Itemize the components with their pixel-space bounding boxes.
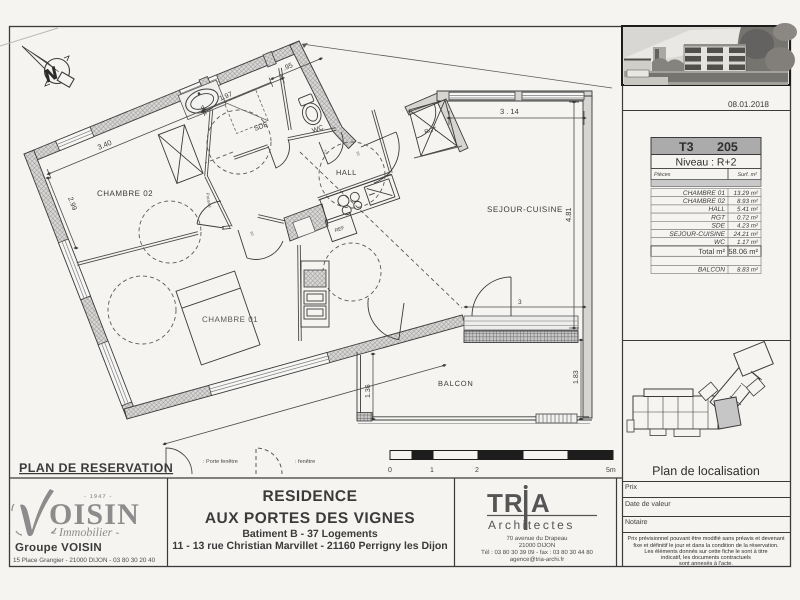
svg-text:15 Place Grangier - 21000 DIJO: 15 Place Grangier - 21000 DIJON - 03 80 …: [13, 557, 156, 564]
svg-text:: Porte fenêtre: : Porte fenêtre: [203, 459, 238, 465]
svg-text:WC: WC: [714, 239, 725, 246]
svg-text:4.23 m²: 4.23 m²: [737, 223, 759, 230]
svg-text:5.41 m²: 5.41 m²: [737, 206, 759, 213]
svg-text:HALL: HALL: [336, 168, 357, 177]
svg-text:Prix prévisionnel pouvant être: Prix prévisionnel pouvant être modifié s…: [627, 535, 784, 542]
svg-text:08.01.2018: 08.01.2018: [728, 100, 769, 109]
svg-text:BALCON: BALCON: [698, 267, 725, 274]
svg-text:RGT: RGT: [711, 214, 726, 221]
svg-text:SEJOUR-CUISINE: SEJOUR-CUISINE: [669, 231, 725, 238]
svg-text:70 avenue du Drapeau: 70 avenue du Drapeau: [506, 535, 567, 542]
svg-text:4.81: 4.81: [564, 207, 573, 222]
svg-text:0.72 m²: 0.72 m²: [737, 214, 759, 221]
svg-text:SEJOUR-CUISINE: SEJOUR-CUISINE: [487, 205, 563, 214]
svg-text:1: 1: [430, 467, 434, 474]
svg-text:AUX PORTES DES VIGNES: AUX PORTES DES VIGNES: [205, 510, 415, 527]
svg-text:13.29 m²: 13.29 m²: [734, 190, 759, 197]
svg-text:BALCON: BALCON: [438, 379, 474, 388]
svg-text:11 - 13 rue Christian Marville: 11 - 13 rue Christian Marvillet - 21160 …: [172, 540, 447, 552]
svg-text:Les éléments donnés sur cette: Les éléments donnés sur cette fiche le s…: [644, 548, 767, 555]
svg-text:CHAMBRE 01: CHAMBRE 01: [202, 315, 258, 324]
svg-text:5m: 5m: [606, 467, 616, 474]
svg-text:T3: T3: [679, 140, 694, 154]
svg-text:Prix: Prix: [625, 483, 638, 491]
svg-text:1.83: 1.83: [573, 370, 580, 384]
svg-text:8.83 m²: 8.83 m²: [737, 267, 759, 274]
svg-text:Groupe VOISIN: Groupe VOISIN: [15, 542, 102, 554]
svg-text:- Immobilier -: - Immobilier -: [52, 525, 119, 539]
svg-text:58.06 m²: 58.06 m²: [728, 247, 758, 256]
svg-text:Surf. m²: Surf. m²: [737, 172, 757, 178]
svg-text:Architectes: Architectes: [488, 518, 575, 532]
svg-text:Niveau : R+2: Niveau : R+2: [676, 157, 737, 169]
svg-text:3 . 14: 3 . 14: [500, 107, 519, 116]
svg-text:CHAMBRE 02: CHAMBRE 02: [683, 198, 725, 205]
svg-text:0: 0: [388, 467, 392, 474]
svg-text:Batiment B - 37 Logements: Batiment B - 37 Logements: [242, 528, 378, 540]
svg-text:RESIDENCE: RESIDENCE: [263, 488, 358, 505]
svg-text:HALL: HALL: [709, 206, 726, 213]
svg-text:Plan de localisation: Plan de localisation: [652, 464, 760, 478]
svg-text:fixe et définitif le jour et d: fixe et définitif le jour et dans la con…: [633, 542, 779, 549]
svg-text:PLAN DE RESERVATION: PLAN DE RESERVATION: [19, 461, 173, 475]
svg-text:Total m²: Total m²: [698, 247, 725, 256]
svg-text:agence@tria-archi.fr: agence@tria-archi.fr: [510, 556, 564, 563]
svg-text:1.17 m²: 1.17 m²: [737, 239, 759, 246]
svg-text:24.21 m²: 24.21 m²: [733, 231, 759, 238]
svg-text:Pièces: Pièces: [654, 171, 671, 178]
svg-text:8.93 m²: 8.93 m²: [737, 198, 759, 205]
svg-text:3: 3: [518, 299, 522, 306]
svg-text:Tél : 03 80 30 39 09 - fax : 0: Tél : 03 80 30 39 09 - fax : 03 80 30 44…: [481, 549, 593, 556]
svg-text:CHAMBRE 01: CHAMBRE 01: [683, 190, 725, 197]
svg-text:2: 2: [475, 467, 479, 474]
svg-text:Date de valeur: Date de valeur: [625, 500, 671, 508]
svg-text:sont annexés à l'acte.: sont annexés à l'acte.: [679, 560, 733, 567]
svg-text:TR A: TR A: [487, 488, 551, 518]
svg-text:CHAMBRE 02: CHAMBRE 02: [97, 189, 153, 198]
svg-text:21000 DIJON: 21000 DIJON: [519, 542, 555, 549]
svg-text:205: 205: [717, 140, 738, 154]
svg-text:Notaire: Notaire: [625, 518, 648, 526]
svg-text:indicatif, les documents contr: indicatif, les documents contractuels: [661, 554, 751, 561]
svg-text:: fenêtre: : fenêtre: [295, 459, 315, 465]
svg-text:SDE: SDE: [711, 223, 725, 230]
